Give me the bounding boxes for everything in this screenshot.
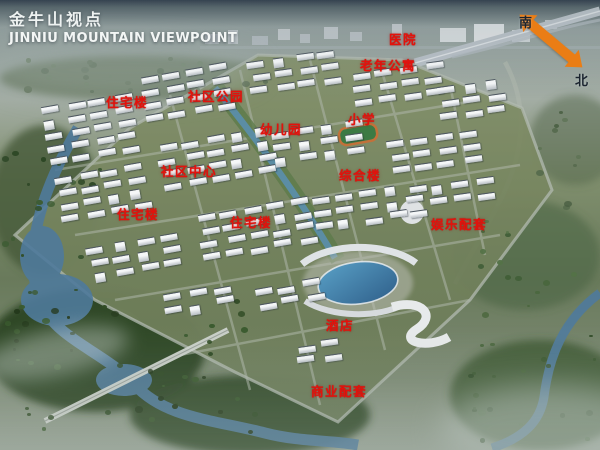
title-chinese: 金牛山视点 — [9, 6, 237, 30]
north-south-arrow-icon — [526, 19, 575, 63]
title-english: JINNIU MOUNTAIN VIEWPOINT — [9, 31, 237, 46]
aerial-masterplan-view: 医院老年公寓社区公园住宅楼小学幼儿园社区中心综合楼住宅楼住宅楼娱乐配套酒店商业配… — [0, 0, 600, 450]
dome-building — [400, 200, 424, 224]
compass: 南 北 — [505, 0, 600, 100]
compass-south-label: 南 — [519, 12, 532, 31]
viewpoint-title: 金牛山视点 JINNIU MOUNTAIN VIEWPOINT — [9, 6, 237, 46]
compass-north-label: 北 — [575, 70, 588, 89]
